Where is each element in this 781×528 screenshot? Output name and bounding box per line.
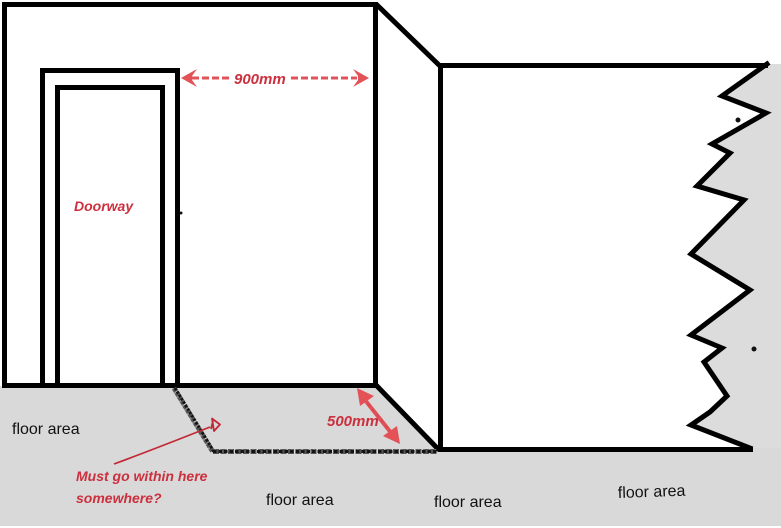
svg-text:floor area: floor area bbox=[618, 483, 686, 502]
svg-text:Must go within here: Must go within here bbox=[76, 468, 208, 484]
svg-text:floor area: floor area bbox=[434, 494, 502, 511]
svg-text:500mm: 500mm bbox=[327, 413, 379, 430]
svg-text:floor area: floor area bbox=[266, 492, 334, 509]
svg-text:somewhere?: somewhere? bbox=[76, 490, 162, 506]
svg-text:Doorway: Doorway bbox=[74, 198, 134, 214]
svg-text:floor area: floor area bbox=[12, 421, 80, 438]
svg-text:900mm: 900mm bbox=[234, 71, 286, 88]
